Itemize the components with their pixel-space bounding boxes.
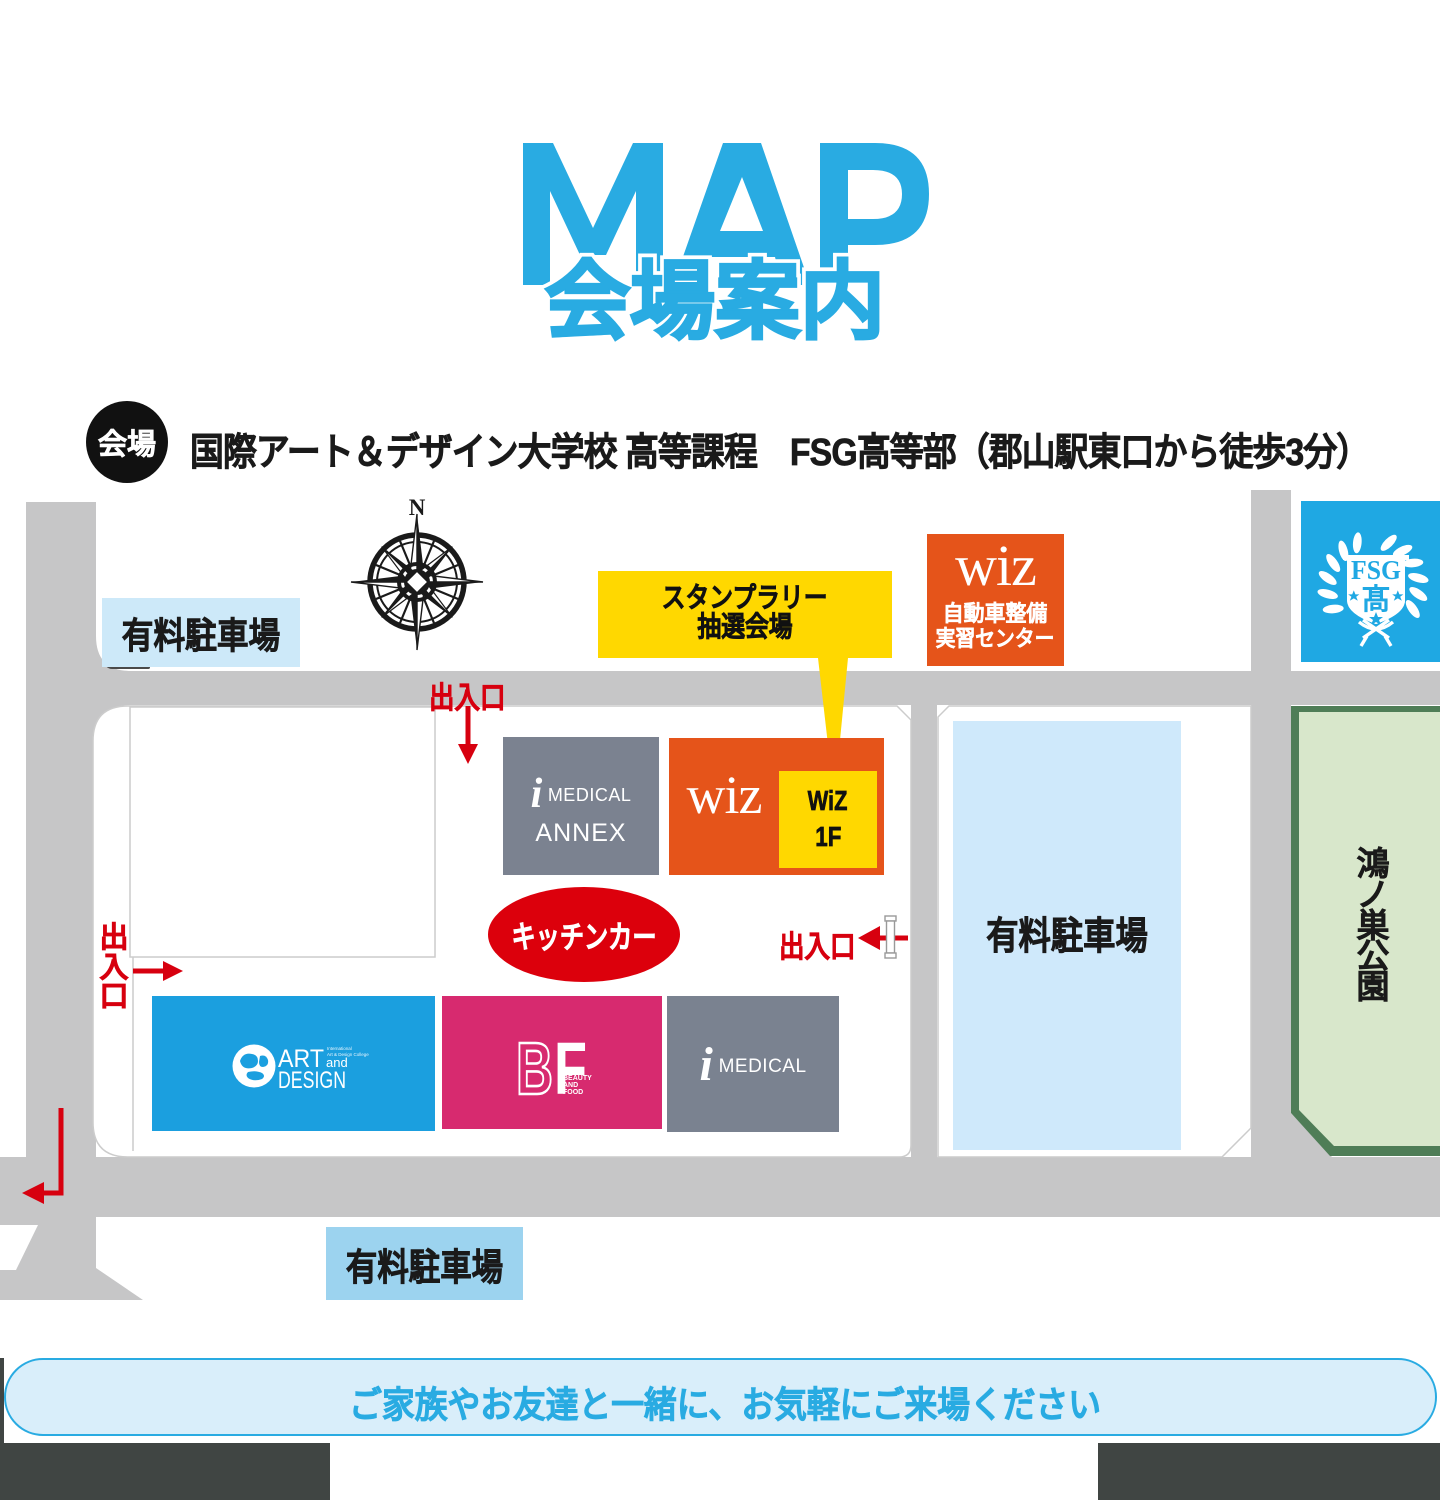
svg-text:髙: 髙	[1361, 583, 1390, 616]
svg-text:Art & Design College: Art & Design College	[327, 1052, 369, 1057]
svg-text:B: B	[516, 1036, 553, 1100]
svg-text:AND: AND	[563, 1082, 578, 1089]
svg-text:International: International	[327, 1046, 352, 1051]
svg-text:DESIGN: DESIGN	[278, 1067, 346, 1092]
svg-text:FSG: FSG	[1351, 555, 1401, 585]
svg-text:FOOD: FOOD	[563, 1089, 583, 1096]
svg-text:BEAUTY: BEAUTY	[563, 1075, 592, 1082]
